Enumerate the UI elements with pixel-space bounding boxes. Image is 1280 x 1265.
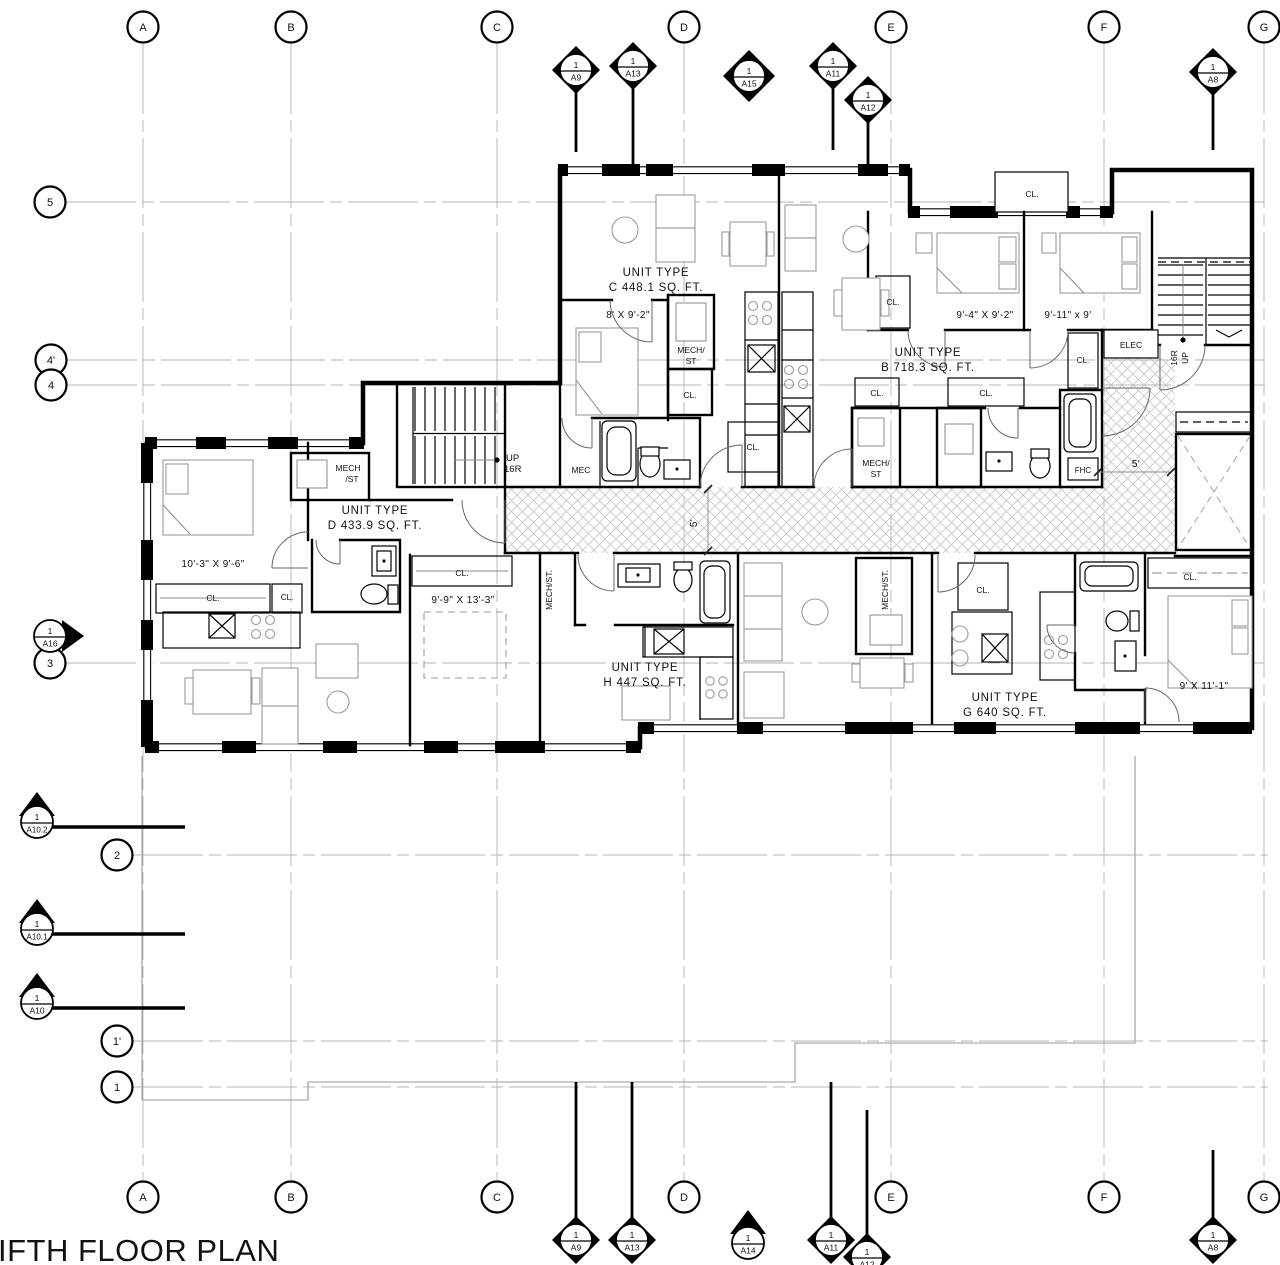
marker-sheet: A9 [571,1243,582,1253]
grid-column-c: C [493,1192,501,1204]
marker-number: 1 [574,60,579,70]
grid-column-e: E [887,22,894,34]
room-label-mech: /ST [345,474,358,484]
stair-risers-label: 16R [504,464,522,475]
room-label-cl: CL. [746,442,759,452]
room-label-cl: CL. [976,585,989,595]
marker-number: 1 [829,1230,834,1240]
grid-column-b: B [287,1192,294,1204]
room-label-mech-vert: MECH/ST. [544,570,554,610]
marker-sheet: A9 [571,73,582,83]
marker-sheet: A11 [824,1243,839,1253]
stair-risers-label: 16R [1169,350,1179,366]
room-label-mech: ST [871,469,882,479]
marker-sheet: A10.1 [27,933,48,942]
floor-plan-sheet: UNIT TYPE C 448.1 SQ. FT. UNIT TYPE B 71… [0,0,1280,1265]
room-label-cl: CL. [281,593,293,602]
grid-column-f: F [1101,22,1108,34]
unit-c-label: UNIT TYPE [623,267,690,279]
marker-number: 1 [866,90,871,100]
unit-g-area: G 640 SQ. FT. [963,707,1047,719]
dim-h-bed: 9'-9" X 13'-3" [431,595,494,606]
marker-sheet: A8 [1208,75,1219,85]
unit-g-label: UNIT TYPE [972,692,1039,704]
room-label-mech: MECH/ [677,345,705,355]
room-label-mech-vert: MECH/ST. [880,570,890,610]
room-label-mech: ST [686,356,697,366]
room-label-cl: CL. [683,390,696,400]
marker-sheet: A12 [860,103,875,113]
room-label-cl: CL. [886,297,899,307]
marker-number: 1 [48,626,53,636]
dim-b-bed1: 9'-4" X 9'-2" [956,310,1013,321]
room-label-elec: ELEC [1120,340,1142,350]
room-label-mech: MECH/ [862,458,890,468]
room-label-fhc: FHC [1075,466,1092,475]
unit-d-label: UNIT TYPE [342,505,409,517]
room-label-cl: CL. [870,388,883,398]
room-label-cl: CL. [206,593,219,603]
marker-sheet: A10 [29,1006,44,1016]
marker-sheet: A12 [859,1260,874,1265]
room-label-cl: CL. [979,388,992,398]
grid-row-3: 3 [47,658,53,670]
dim-corridor: 5' [689,519,700,527]
unit-b-label: UNIT TYPE [895,347,962,359]
dim-b-bed2: 9'-11" x 9' [1044,310,1091,321]
grid-row-1: 1 [114,1082,120,1094]
marker-number: 1 [747,66,752,76]
room-label-cl: CL. [1077,356,1089,365]
marker-sheet: A10.2 [27,826,48,835]
floor-plan-drawing: UNIT TYPE C 448.1 SQ. FT. UNIT TYPE B 71… [0,0,1280,1265]
marker-number: 1 [35,993,40,1003]
marker-sheet: A14 [740,1246,755,1256]
grid-column-e: E [887,1192,894,1204]
marker-number: 1 [1211,62,1216,72]
dim-c-bed: 8' X 9'-2" [606,310,650,321]
room-label-cl: CL. [1025,189,1038,199]
marker-number: 1 [630,1230,635,1240]
grid-row-4p: 4' [47,355,55,367]
sheet-title: IFTH FLOOR PLAN [0,1233,279,1265]
marker-sheet: A15 [741,79,756,89]
marker-number: 1 [35,812,40,822]
grid-column-b: B [287,22,294,34]
dim-d-bed: 10'-3" X 9'-6" [181,559,244,570]
grid-row-4: 4 [48,380,54,392]
marker-number: 1 [746,1233,751,1243]
marker-sheet: A11 [826,69,841,79]
room-label-cl: CL. [455,568,468,578]
marker-sheet: A13 [625,69,640,79]
room-label-cl: CL. [1183,572,1196,582]
room-label-mec: MEC [572,465,591,475]
stair-up-label: UP [1180,352,1190,364]
grid-column-a: A [139,1192,147,1204]
unit-d-area: D 433.9 SQ. FT. [328,520,422,532]
marker-number: 1 [1211,1230,1216,1240]
grid-column-c: C [493,22,501,34]
unit-h-area: H 447 SQ. FT. [603,677,686,689]
marker-number: 1 [631,56,636,66]
dim-elevator: 5' [1132,459,1140,470]
stair-up-label: UP [506,453,519,464]
grid-column-g: G [1260,1192,1269,1204]
grid-column-f: F [1101,1192,1108,1204]
marker-sheet: A16 [42,639,57,649]
marker-number: 1 [831,56,836,66]
grid-column-g: G [1260,22,1269,34]
unit-b-area: B 718.3 SQ. FT. [881,362,975,374]
marker-number: 1 [35,919,40,929]
grid-row-2: 2 [114,850,120,862]
grid-column-a: A [139,22,147,34]
marker-sheet: A13 [624,1243,639,1253]
grid-column-d: D [680,1192,688,1204]
grid-row-1p: 1' [113,1036,121,1048]
marker-sheet: A8 [1208,1243,1219,1253]
unit-h-label: UNIT TYPE [612,662,679,674]
room-label-mech: MECH [335,463,360,473]
grid-column-d: D [680,22,688,34]
grid-row-5: 5 [47,197,53,209]
marker-number: 1 [574,1230,579,1240]
unit-c-area: C 448.1 SQ. FT. [609,282,703,294]
dim-g-bed: 9' X 11'-1" [1180,681,1229,692]
marker-number: 1 [865,1247,870,1257]
